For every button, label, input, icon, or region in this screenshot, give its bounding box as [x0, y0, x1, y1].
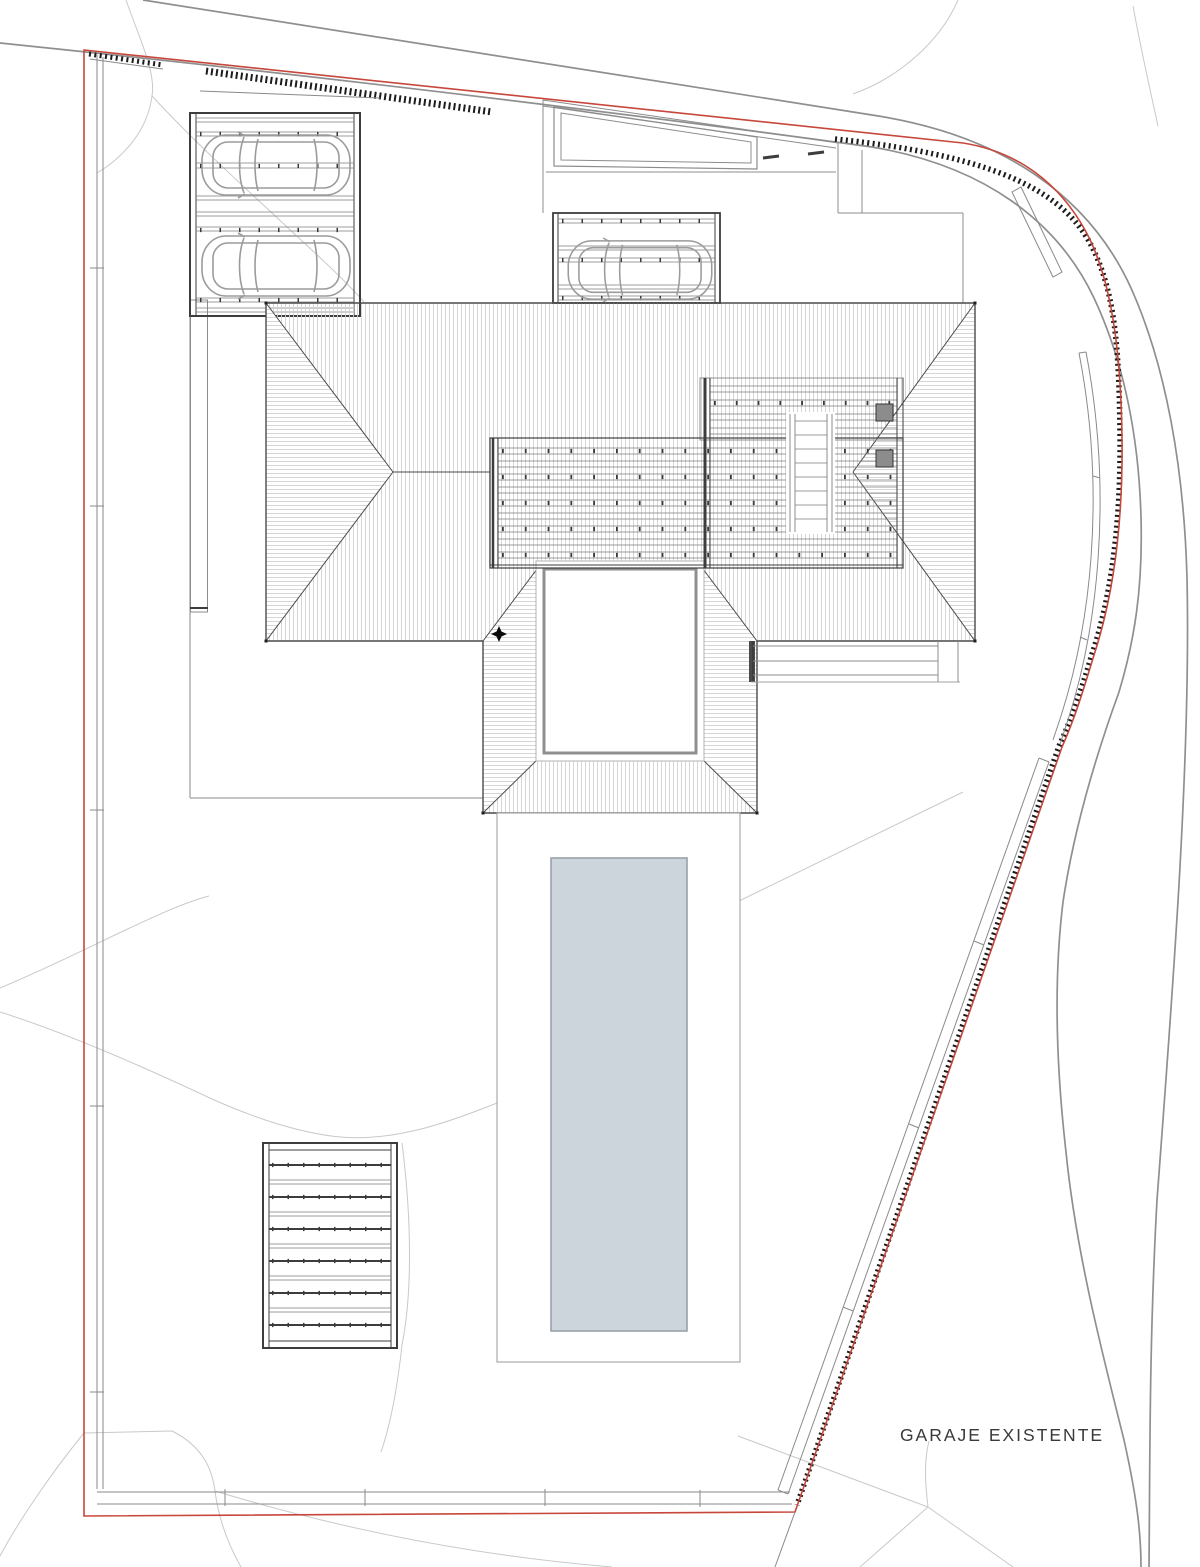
pool-area [497, 813, 740, 1362]
label-garaje-existente: GARAJE EXISTENTE [900, 1425, 1104, 1445]
pergola-ladder [786, 412, 835, 534]
site-plan-drawing: GARAJE EXISTENTE [0, 0, 1200, 1567]
pergola-detail-box-2 [876, 450, 893, 467]
courtyard [536, 561, 704, 761]
site-plan-page: GARAJE EXISTENTE [0, 0, 1200, 1567]
swimming-pool [551, 858, 687, 1331]
pergola-detail-box-1 [876, 404, 893, 421]
